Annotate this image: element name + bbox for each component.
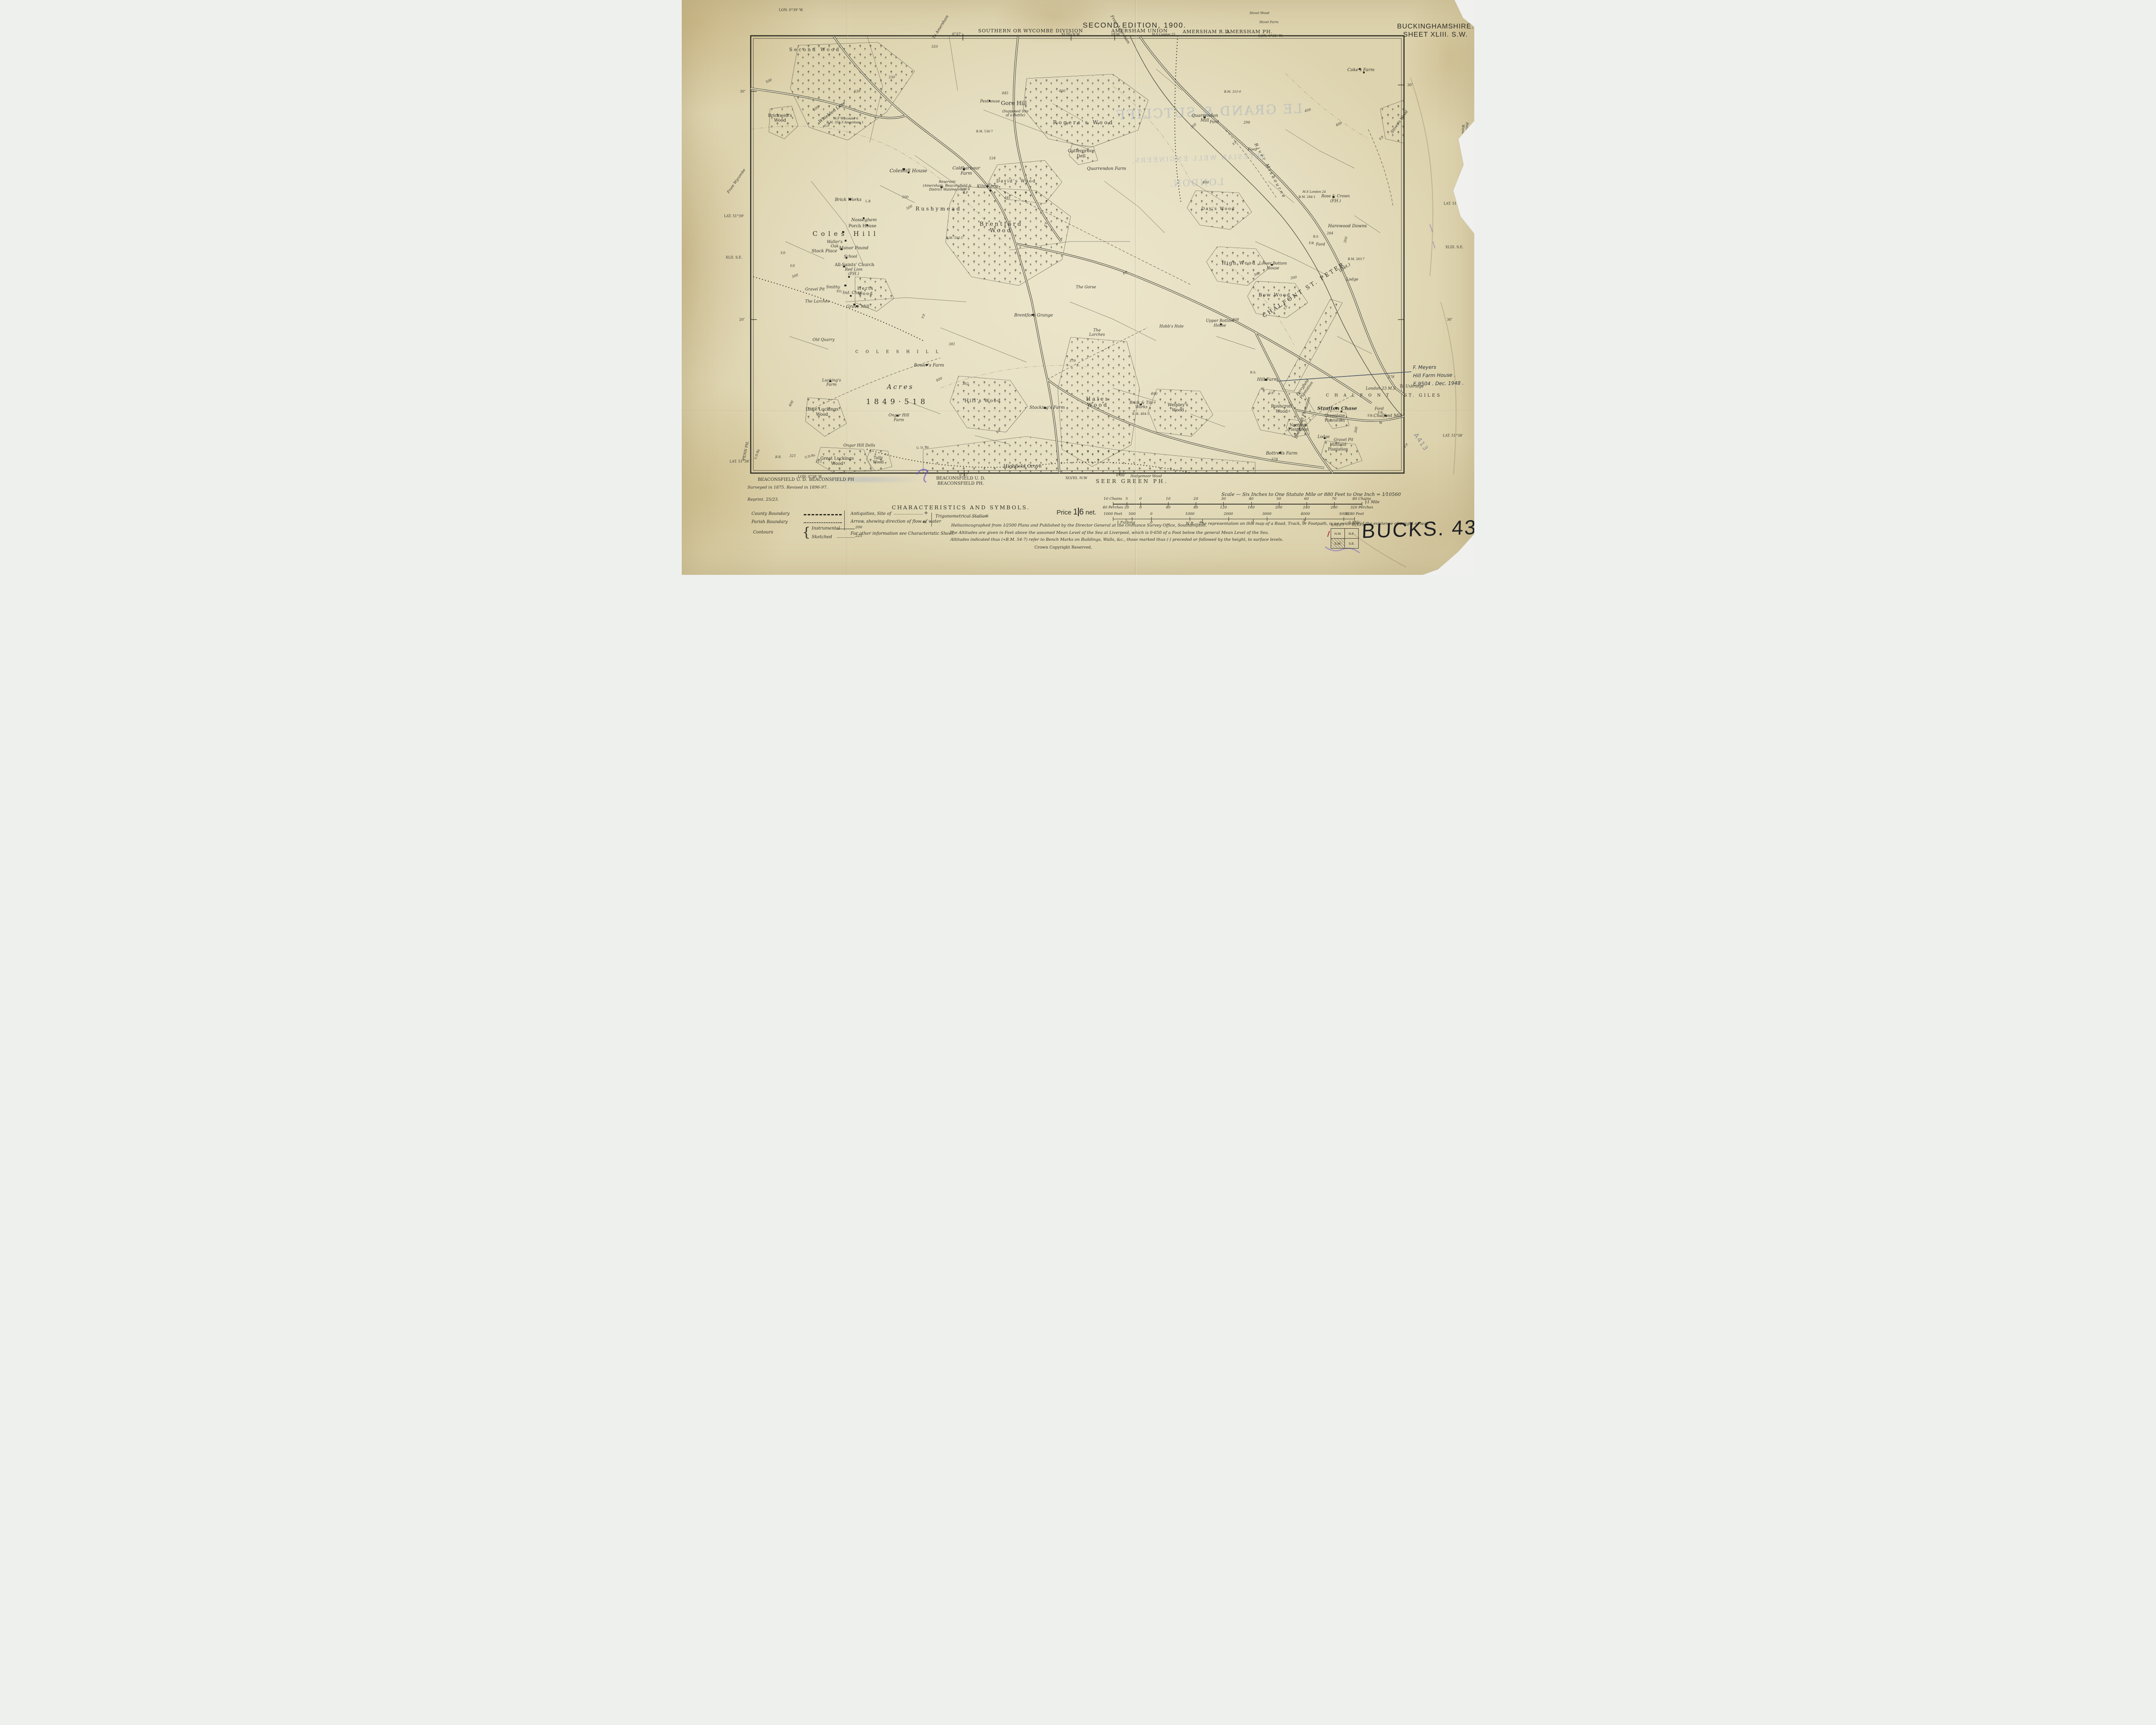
scale-tick — [1113, 517, 1113, 521]
scale-tick-label-top: 10 Chains — [1103, 497, 1122, 501]
scale-tick-label-top: 60 — [1304, 497, 1309, 501]
sheet-index-grid: N.W. N.E. S.W. S.E. — [1331, 528, 1359, 549]
scale-bar-axis — [1113, 504, 1362, 504]
scale-bar-0: 10 Chains501020304050607080 Chains40 Per… — [1113, 499, 1362, 512]
scale-tick-label-top: 20 — [1194, 497, 1198, 501]
sheet-index-sw: S.W. — [1331, 539, 1345, 549]
scale-tick-label-bottom: 80 — [1194, 505, 1198, 510]
scale-tick — [1344, 517, 1344, 521]
scale-tick-label-top: 3000 — [1262, 512, 1272, 516]
scale-tick — [1190, 517, 1190, 521]
scale-bar-end-label: ⎬1 Mile — [1364, 500, 1380, 505]
scale-tick-label-bottom: 240 — [1303, 505, 1310, 510]
scale-bars: 10 Chains501020304050607080 Chains40 Per… — [682, 0, 1474, 575]
scale-tick-label-top: 50 — [1276, 497, 1281, 501]
sheet-index-title: SHEET ··· XLIII. — [1331, 523, 1363, 527]
sheet-index-se: S.E. — [1345, 539, 1359, 549]
scale-tick-label-top: 5280 Feet — [1345, 512, 1364, 516]
scale-tick-label-top: 4000 — [1300, 512, 1310, 516]
scale-tick-label-bottom: 200 — [1275, 505, 1282, 510]
imprint-line1: Heliozincographed from 1⁄2500 Plans and … — [951, 523, 1207, 528]
imprint-line3: Altitudes indicated thus (∗B.M. 54·7) re… — [950, 537, 1283, 542]
sheet-index-diagram: SHEET ··· XLIII. N.W. N.E. S.W. S.E. — [1331, 523, 1363, 549]
scale-tick-label-top: 500 — [1128, 512, 1135, 516]
fold-crease-vertical — [1135, 0, 1137, 575]
scale-tick-label-bottom: 320 Perches — [1350, 505, 1373, 510]
sheet-index-nw: N.W. — [1331, 529, 1345, 539]
scale-tick — [1228, 517, 1229, 521]
fold-crease-horizontal — [682, 411, 1474, 412]
scale-tick-label-bottom: 20 — [1125, 505, 1129, 510]
scale-tick-label-top: 70 — [1332, 497, 1336, 501]
handwritten-owner-note: F. Meyers Hill Farm House . E.9504 . Dec… — [1413, 363, 1464, 388]
scale-tick-label-top: 1000 Feet — [1103, 512, 1122, 516]
scale-tick-label-top: 2000 — [1224, 512, 1233, 516]
scale-tick — [1267, 517, 1267, 521]
scale-tick-label-top: 0 — [1150, 512, 1152, 516]
scale-tick-label-bottom: 160 — [1247, 505, 1254, 510]
sheet-index-ne: N.E. — [1345, 529, 1359, 539]
scale-tick-label-top: 1000 — [1185, 512, 1195, 516]
scale-tick-label-top: 10 — [1166, 497, 1171, 501]
imprint-line2: The Altitudes are given in Feet above th… — [950, 530, 1269, 535]
scale-tick-label-bottom: 40 Perches — [1103, 505, 1123, 510]
scale-tick-label-top: 30 — [1221, 497, 1226, 501]
map-sheet: LE GRAND & SUTCLIFF ARTESIAN WELL ENGINE… — [682, 0, 1474, 575]
scale-tick-label-bottom: 280 — [1331, 505, 1338, 510]
scale-tick-label-bottom: 0 — [1139, 505, 1141, 510]
scale-tick-label-bottom: 40 — [1166, 505, 1171, 510]
copyright-note: Crown Copyright Reserved. — [1034, 545, 1092, 550]
scale-tick-label-top: 0 — [1139, 497, 1141, 501]
scale-tick-label-top: 40 — [1249, 497, 1253, 501]
scale-tick-label-top: 5 — [1125, 497, 1128, 501]
fold-crease-vertical-2 — [846, 0, 848, 575]
scale-tick-label-bottom: 120 — [1220, 505, 1227, 510]
scale-bar-axis — [1113, 519, 1355, 519]
